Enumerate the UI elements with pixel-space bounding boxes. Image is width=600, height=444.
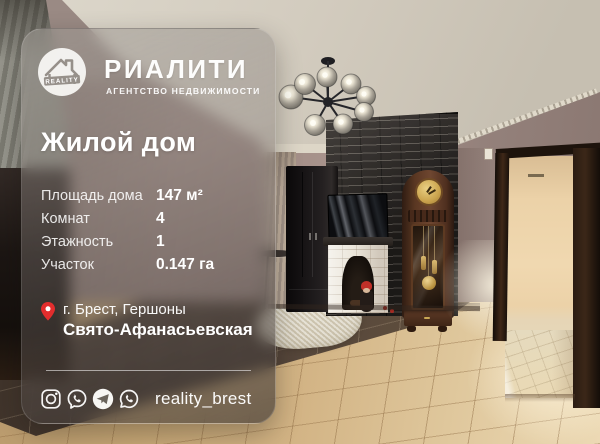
detail-row-rooms: Комнат 4 [41,207,257,230]
chandelier [264,54,394,142]
wardrobe-door-seam [302,172,303,277]
detail-label: Площадь дома [41,188,156,204]
detail-value: 1 [156,233,165,251]
wardrobe-handle [309,233,311,240]
doorway-floor [505,330,577,398]
wardrobe-handle [315,233,317,240]
divider-line [46,370,251,371]
brand-name: РИАЛИТИ [104,54,269,85]
location: г. Брест, Гершоны Свято-Афанасьевская [39,300,253,340]
door-frame-right [573,148,600,408]
social-handle: reality_brest [155,389,252,409]
promo-image: REALITY РИАЛИТИ АГЕНТСТВО НЕДВИЖИМОСТИ Ж… [0,0,600,444]
location-line2: Свято-Афанасьевская [63,319,253,340]
wardrobe-door-seam [312,172,313,277]
detail-value: 147 м² [156,187,203,205]
detail-label: Этажность [41,234,156,250]
reality-logo-icon: REALITY [37,47,87,97]
details-table: Площадь дома 147 м² Комнат 4 Этажность 1… [41,184,257,276]
social-row: reality_brest [39,385,252,412]
detail-value: 4 [156,210,165,228]
location-text: г. Брест, Гершоны Свято-Афанасьевская [63,300,253,340]
door-frame-left [493,153,510,341]
doorway-ceiling-lamp [528,174,544,177]
whatsapp-icon[interactable] [117,387,141,411]
detail-label: Комнат [41,211,156,227]
doorway-threshold-shadow [505,394,575,402]
location-line1: г. Брест, Гершоны [63,300,253,319]
location-pin-icon [41,302,55,321]
light-switch [484,148,493,160]
clock-drawer-knob [424,317,430,319]
clock-foot [407,326,416,332]
detail-value: 0.147 га [156,256,214,274]
brand-tagline: АГЕНТСТВО НЕДВИЖИМОСТИ [106,86,271,96]
detail-label: Участок [41,257,156,273]
detail-row-plot: Участок 0.147 га [41,253,257,276]
doll-face [363,288,370,293]
telegram-icon[interactable] [91,387,115,411]
viber-icon[interactable] [65,387,89,411]
detail-row-area: Площадь дома 147 м² [41,184,257,207]
glass-reflection [413,226,443,308]
listing-card: REALITY РИАЛИТИ АГЕНТСТВО НЕДВИЖИМОСТИ Ж… [21,28,276,424]
listing-title: Жилой дом [41,127,196,158]
clock-carving [408,210,448,222]
detail-row-floors: Этажность 1 [41,230,257,253]
instagram-icon[interactable] [39,387,63,411]
